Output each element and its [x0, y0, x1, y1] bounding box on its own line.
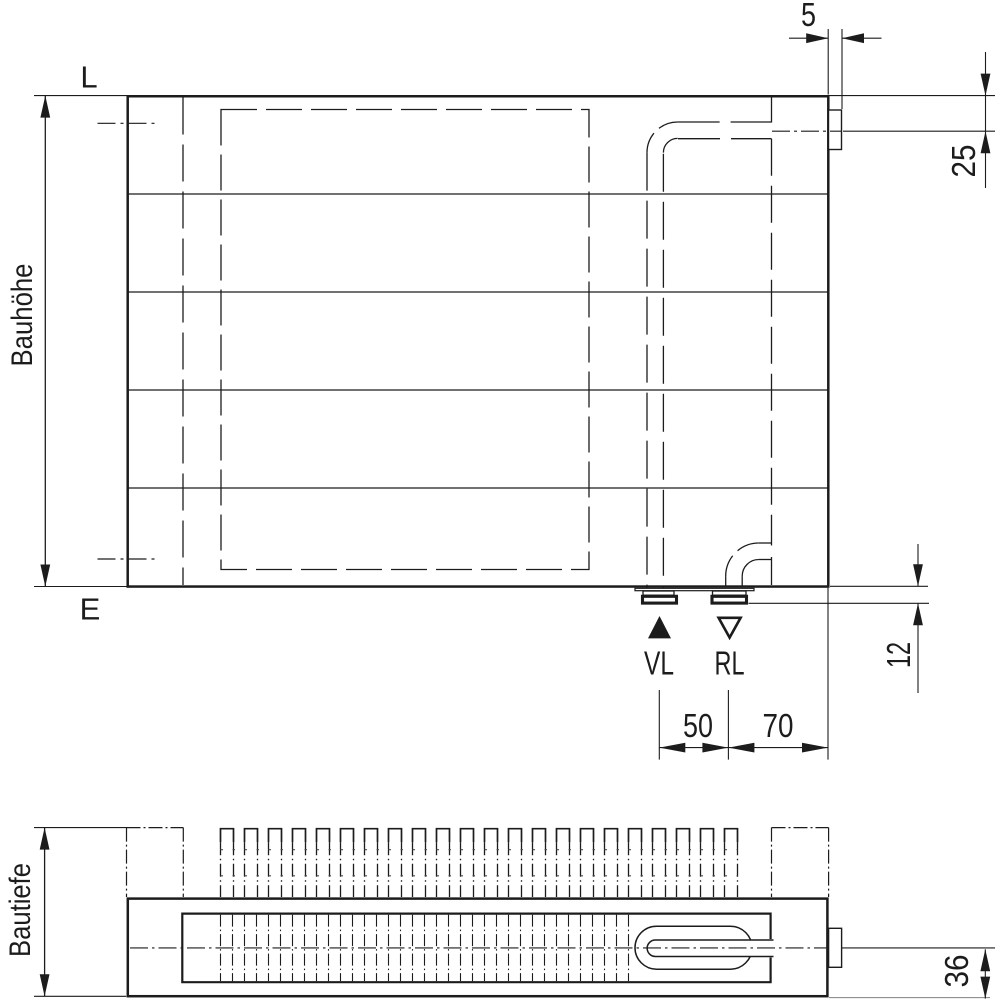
- svg-text:Bauhöhe: Bauhöhe: [6, 264, 39, 367]
- svg-text:5: 5: [801, 0, 816, 33]
- svg-text:70: 70: [763, 707, 794, 744]
- svg-text:E: E: [80, 592, 101, 627]
- svg-text:12: 12: [880, 642, 917, 668]
- svg-text:36: 36: [938, 955, 975, 988]
- svg-text:L: L: [80, 60, 97, 95]
- svg-text:25: 25: [945, 145, 982, 178]
- svg-text:Bautiefe: Bautiefe: [4, 863, 37, 957]
- svg-text:RL: RL: [715, 644, 745, 681]
- svg-text:VL: VL: [644, 644, 674, 681]
- svg-text:50: 50: [683, 707, 713, 744]
